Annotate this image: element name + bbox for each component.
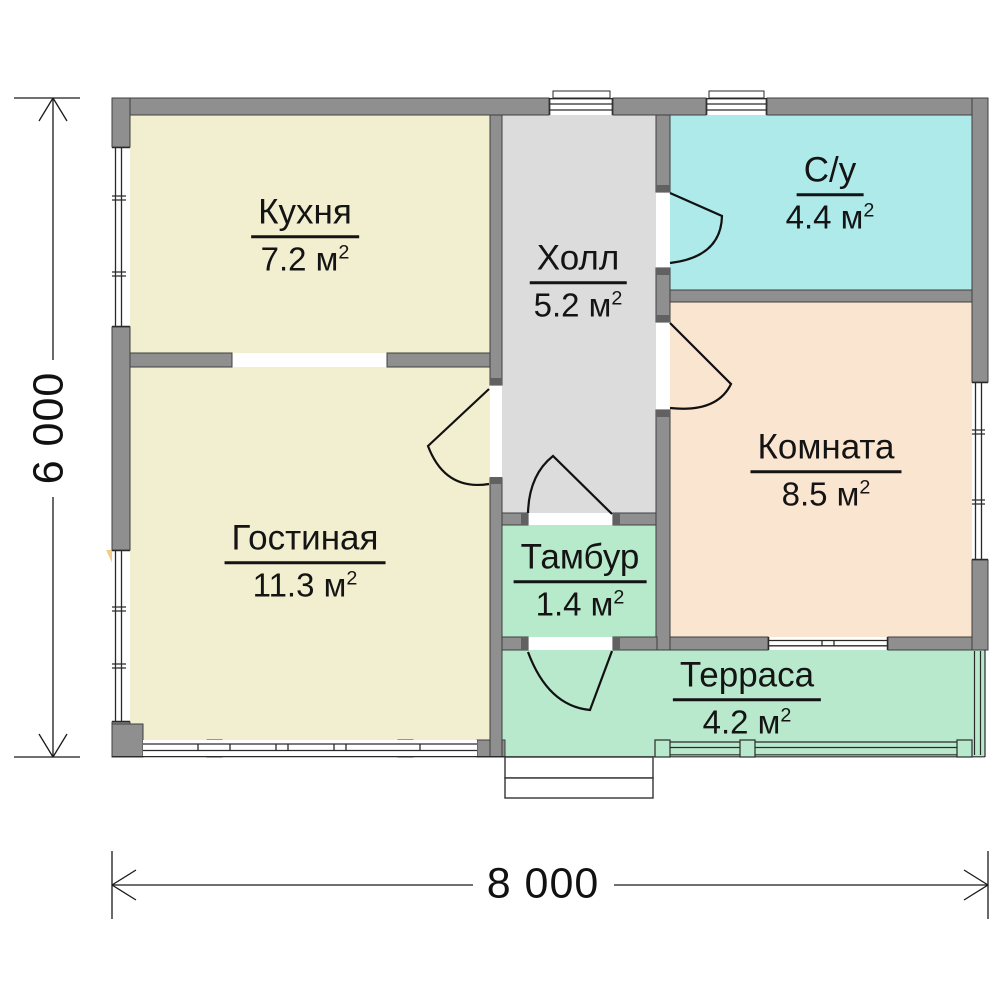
wall-segment (112, 98, 549, 115)
room-area: 11.3 м2 (225, 566, 386, 604)
room-label-bathroom: С/у 4.4 м2 (786, 150, 875, 236)
jamb (521, 637, 528, 650)
room-area: 7.2 м2 (251, 240, 359, 278)
jamb (656, 410, 670, 417)
wall-segment (888, 637, 972, 650)
wall-segment (656, 410, 670, 650)
room-name: Гостиная (225, 518, 386, 564)
room-label-kitchen: Кухня 7.2 м2 (251, 192, 359, 278)
jamb (490, 477, 502, 484)
jamb (613, 637, 620, 650)
room-area: 8.5 м2 (750, 475, 901, 513)
railing-post (740, 740, 755, 757)
wall-segment (972, 98, 988, 382)
jamb (656, 185, 670, 192)
step (505, 778, 653, 798)
room-label-room: Комната 8.5 м2 (750, 427, 901, 513)
entrance-steps (505, 757, 653, 798)
dimension-width-label: 8 000 (487, 860, 600, 909)
wall-segment (112, 327, 130, 550)
room-label-hall: Холл 5.2 м2 (530, 238, 627, 324)
window-room-bottom (768, 637, 888, 650)
jamb (490, 378, 502, 385)
window-kitchen-left (112, 147, 130, 327)
window-room-right (972, 382, 988, 560)
room-name: Кухня (251, 192, 359, 238)
floor-plan-page: Кухня 7.2 м2 Холл 5.2 м2 С/у 4.4 м2 Комн… (0, 0, 1000, 1000)
wall-segment (490, 115, 502, 385)
wall-segment (657, 637, 768, 650)
jamb (656, 268, 670, 275)
wall-corner-block (112, 724, 143, 757)
window-top-hall (549, 91, 613, 115)
room-name: Холл (530, 238, 627, 284)
jamb (521, 513, 528, 525)
room-area: 1.4 м2 (514, 585, 647, 623)
wall-segment (613, 98, 706, 115)
room-label-tambour: Тамбур 1.4 м2 (514, 537, 647, 623)
railing-post (957, 740, 972, 757)
wall-segment (972, 560, 988, 650)
wall-segment (130, 353, 232, 367)
jamb (656, 315, 670, 322)
railing-post (655, 740, 670, 757)
room-name: Тамбур (514, 537, 647, 583)
dimension-height-label: 6 000 (25, 372, 74, 485)
room-name: Терраса (673, 655, 821, 701)
room-area: 4.2 м2 (673, 703, 821, 741)
room-name: С/у (797, 150, 864, 196)
wall-segment (490, 478, 502, 757)
wall-segment (112, 98, 130, 147)
window-bottom-band (112, 740, 505, 757)
room-name: Комната (750, 427, 901, 473)
step (505, 757, 653, 778)
room-area: 5.2 м2 (530, 286, 627, 324)
room-area: 4.4 м2 (786, 198, 875, 236)
wall-segment (670, 290, 972, 302)
room-label-terrace: Терраса 4.2 м2 (673, 655, 821, 741)
wall-segment (656, 115, 670, 192)
jamb (613, 513, 620, 525)
wall-segment (767, 98, 988, 115)
window-living-left (112, 550, 130, 722)
wall-segment (656, 268, 670, 322)
window-top-bathroom (706, 91, 767, 115)
wall-segment (387, 353, 490, 367)
room-label-living: Гостиная 11.3 м2 (225, 518, 386, 604)
